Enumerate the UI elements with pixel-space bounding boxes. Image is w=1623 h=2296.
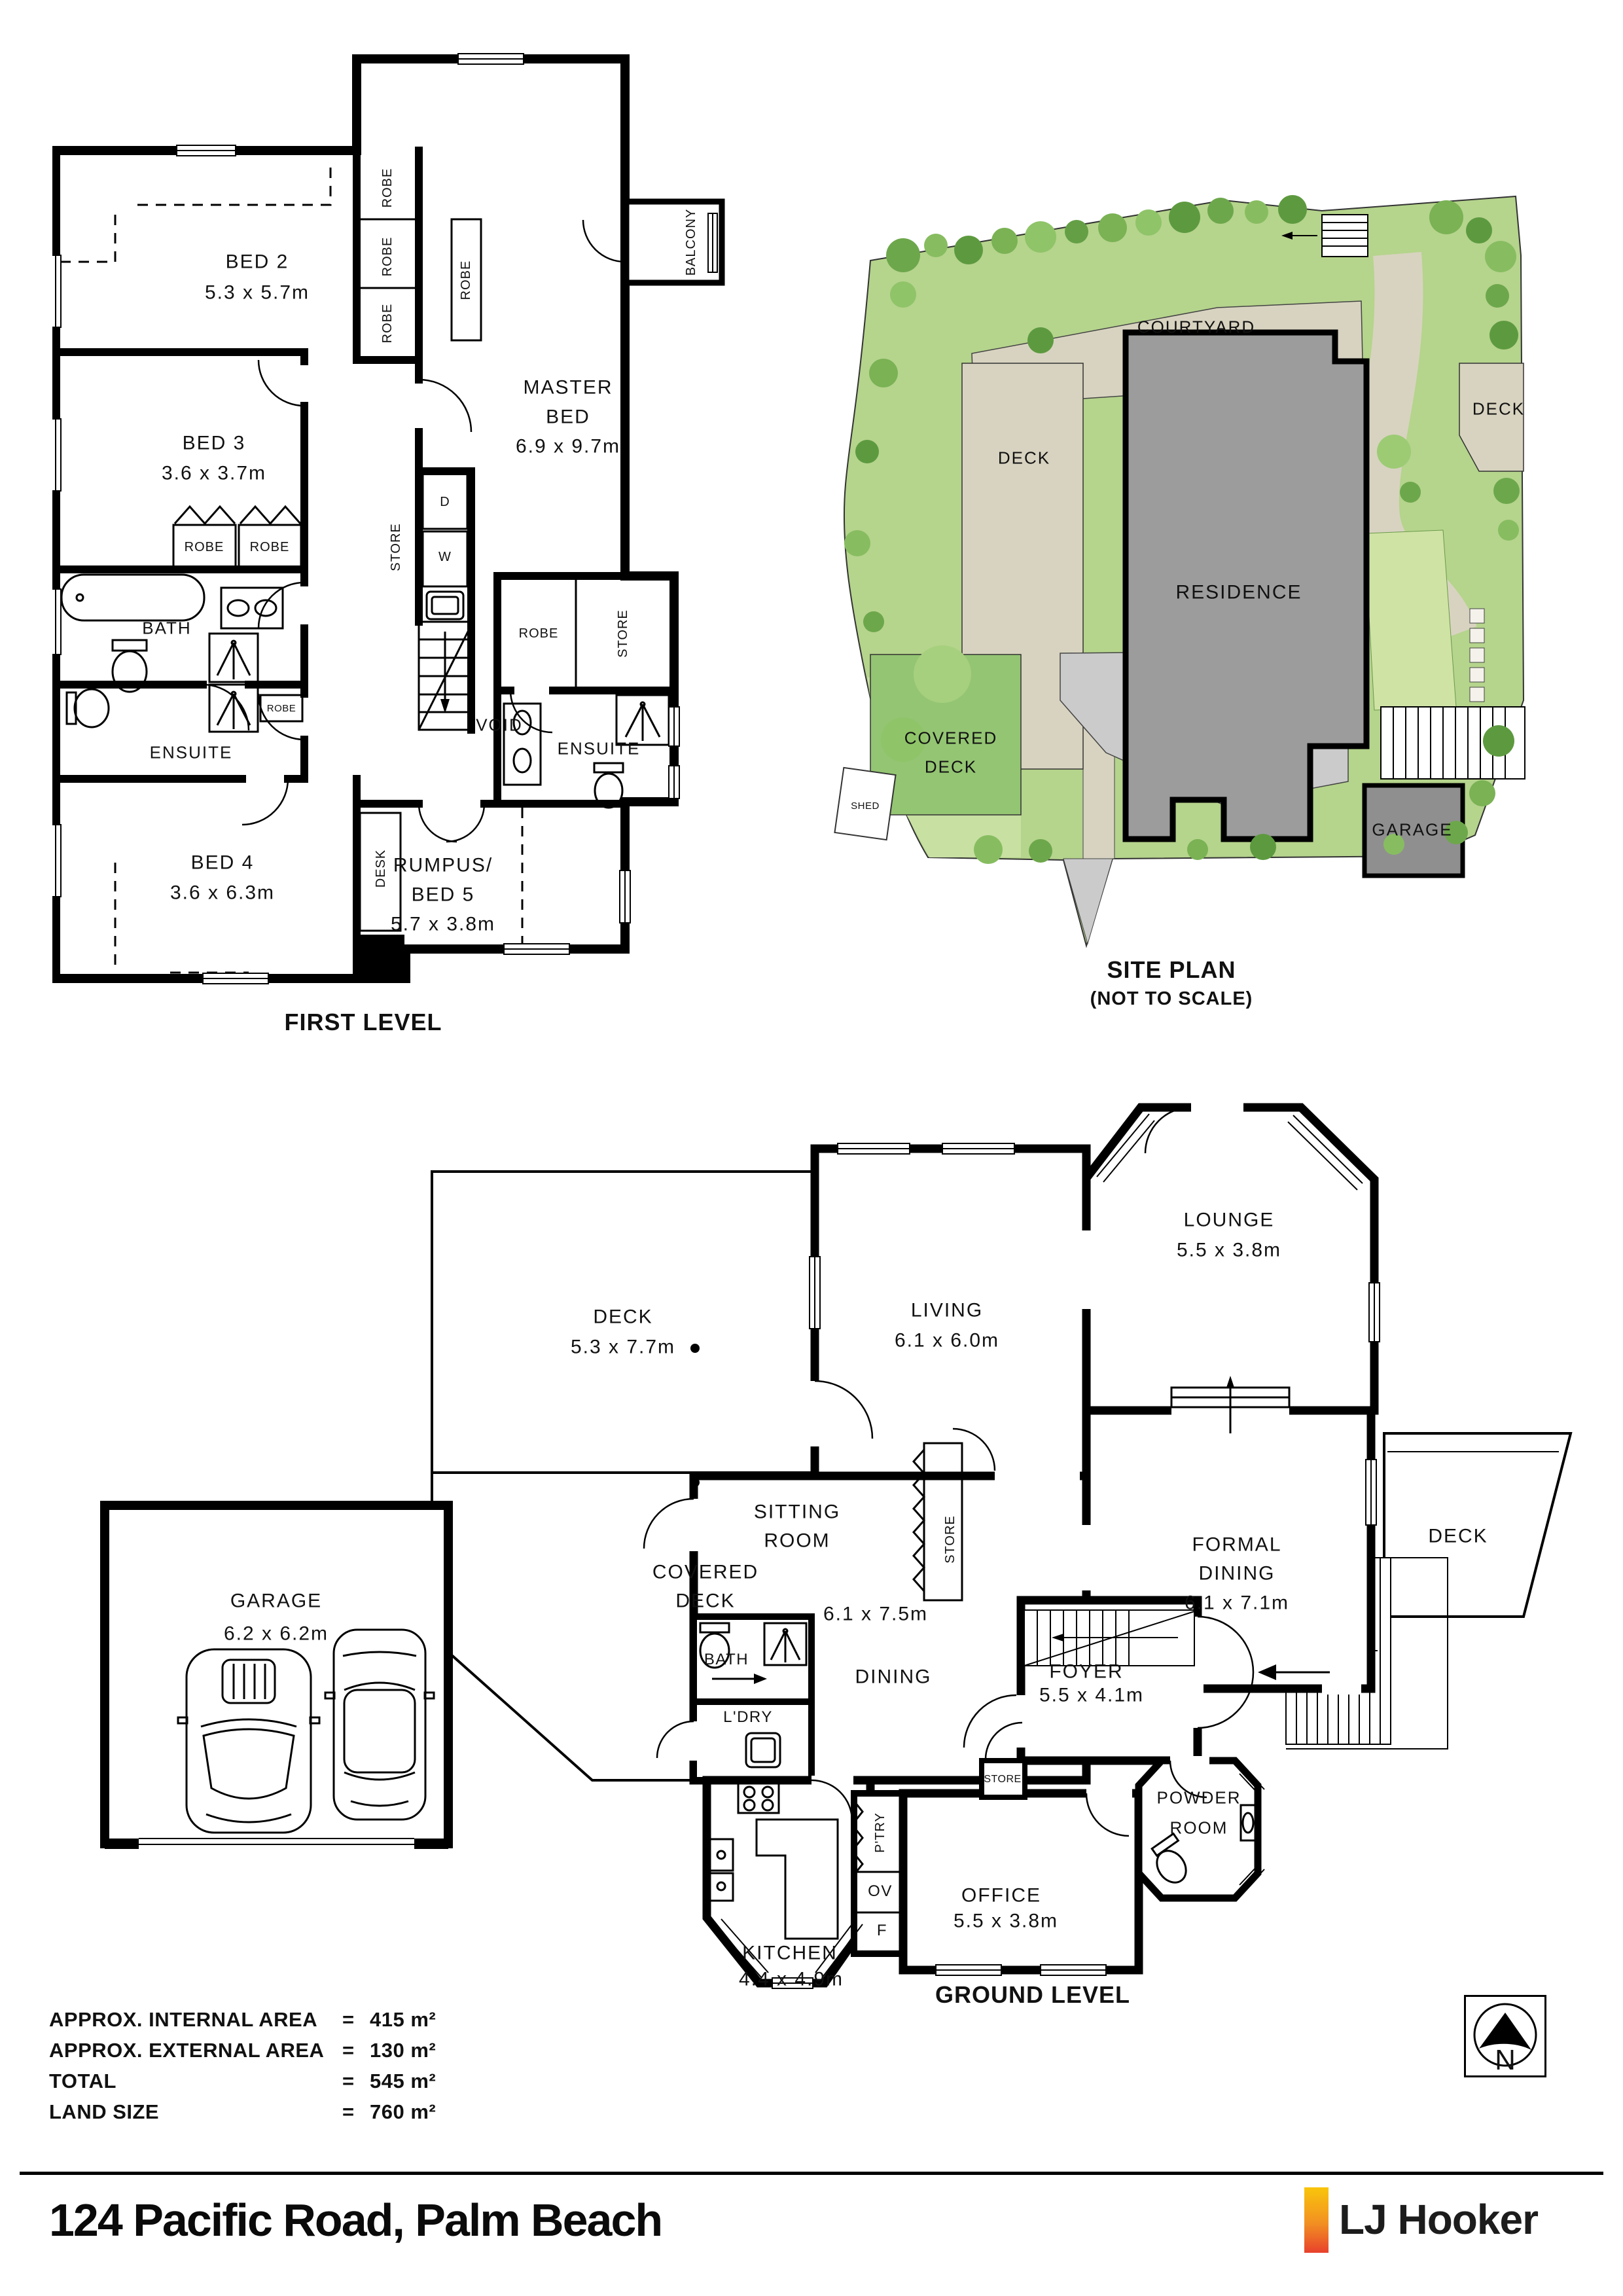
label-robe-ensuite: ROBE	[267, 704, 296, 715]
label-gl-deck-name: DECK	[593, 1306, 652, 1328]
label-bed2-dims: 5.3 x 5.7m	[205, 282, 310, 304]
label-gl-sitting-1: SITTING	[754, 1501, 840, 1523]
label-gl-powder-2: ROOM	[1170, 1819, 1228, 1838]
label-gl-bath: BATH	[704, 1651, 749, 1668]
label-rumpus-1: RUMPUS/	[393, 855, 493, 876]
label-gl-covered-2: DECK	[675, 1590, 735, 1612]
label-gl-dining-dims: 6.1 x 7.5m	[823, 1604, 928, 1625]
label-robe-col-2: ROBE	[380, 237, 395, 277]
caption-first-level: FIRST LEVEL	[284, 1009, 442, 1035]
label-gl-foyer-dims: 5.5 x 4.1m	[1039, 1685, 1144, 1706]
label-desk: DESK	[374, 850, 388, 888]
first-level-footprint	[56, 59, 674, 978]
label-gl-lounge-dims: 5.5 x 3.8m	[1177, 1240, 1281, 1261]
label-gl-store-cabinet: STORE	[943, 1515, 957, 1564]
summary-row: LAND SIZE = 760 m²	[49, 2096, 494, 2127]
label-store-hall: STORE	[389, 523, 403, 571]
label-gl-office-dims: 5.5 x 3.8m	[954, 1910, 1058, 1932]
label-gl-living-name: LIVING	[911, 1300, 983, 1321]
ljhooker-logo-bar	[1304, 2187, 1329, 2253]
label-rumpus-2: BED 5	[412, 884, 475, 906]
ground-level-plan-svg	[419, 1067, 1577, 2016]
label-master-dims: 6.9 x 9.7m	[516, 436, 620, 457]
footer-divider	[20, 2172, 1603, 2175]
label-bed3-name: BED 3	[183, 433, 246, 454]
caption-site-plan: SITE PLAN	[1107, 957, 1236, 983]
label-bed2-name: BED 2	[226, 251, 289, 273]
label-void: VOID	[476, 716, 523, 735]
label-gl-powder-1: POWDER	[1157, 1789, 1241, 1808]
summary-label: LAND SIZE	[49, 2100, 342, 2124]
label-site-deck-right: DECK	[1472, 400, 1525, 419]
summary-equals: =	[342, 2039, 370, 2062]
label-robe-col-1: ROBE	[380, 168, 395, 208]
label-garage-name: GARAGE	[230, 1590, 322, 1612]
label-courtyard: COURTYARD	[1137, 318, 1255, 337]
label-ensuite-left: ENSUITE	[150, 744, 233, 762]
summary-value: 130 m²	[370, 2039, 494, 2062]
label-robe-bed3-2: ROBE	[250, 540, 290, 554]
label-bed4-name: BED 4	[191, 852, 255, 874]
summary-value: 415 m²	[370, 2008, 494, 2032]
caption-site-plan-note: (NOT TO SCALE)	[1090, 989, 1253, 1010]
label-gl-deck-right: DECK	[1428, 1526, 1488, 1547]
label-master-1: MASTER	[523, 377, 613, 399]
label-bed4-dims: 3.6 x 6.3m	[170, 882, 275, 904]
gl-foyer-stairs	[1024, 1610, 1194, 1666]
label-store-band: STORE	[616, 609, 630, 658]
label-rumpus-dims: 5.7 x 3.8m	[391, 914, 495, 935]
site-plan-svg	[805, 177, 1538, 1021]
label-site-deck-left: DECK	[998, 449, 1050, 468]
summary-row: TOTAL = 545 m²	[49, 2066, 494, 2096]
label-gl-foyer-name: FOYER	[1049, 1661, 1123, 1683]
floorplan-page: BED 2 5.3 x 5.7m BED 3 3.6 x 3.7m MASTER…	[0, 0, 1623, 2296]
label-compass-north: N	[1495, 2045, 1516, 2076]
label-gl-office-name: OFFICE	[961, 1885, 1041, 1907]
label-gl-deck-dims: 5.3 x 7.7m	[571, 1336, 675, 1358]
summary-row: APPROX. EXTERNAL AREA = 130 m²	[49, 2035, 494, 2066]
label-bath: BATH	[142, 619, 191, 638]
summary-equals: =	[342, 2008, 370, 2032]
label-robe-col-3: ROBE	[380, 304, 395, 344]
label-gl-covered-1: COVERED	[652, 1562, 758, 1583]
property-address: 124 Pacific Road, Palm Beach	[49, 2194, 662, 2246]
label-master-2: BED	[546, 406, 590, 428]
caption-ground-level: GROUND LEVEL	[935, 1982, 1130, 2008]
summary-value: 545 m²	[370, 2070, 494, 2093]
label-gl-oven: OV	[868, 1883, 893, 1900]
summary-value: 760 m²	[370, 2100, 494, 2124]
summary-label: APPROX. EXTERNAL AREA	[49, 2039, 342, 2062]
label-bed3-dims: 3.6 x 3.7m	[162, 463, 266, 484]
summary-label: APPROX. INTERNAL AREA	[49, 2008, 342, 2032]
label-site-covered-1: COVERED	[904, 729, 998, 748]
summary-row: APPROX. INTERNAL AREA = 415 m²	[49, 2004, 494, 2035]
summary-equals: =	[342, 2100, 370, 2124]
label-gl-fridge: F	[877, 1922, 887, 1939]
label-gl-kitchen-dims: 4.4 x 4.9m	[739, 1969, 844, 1990]
area-summary: APPROX. INTERNAL AREA = 415 m² APPROX. E…	[49, 2004, 494, 2127]
label-gl-store-small: STORE	[984, 1774, 1021, 1785]
label-gl-lounge-name: LOUNGE	[1184, 1210, 1275, 1231]
label-robe-island: ROBE	[459, 260, 473, 300]
label-garage-dims: 6.2 x 6.2m	[224, 1623, 329, 1645]
label-gl-living-dims: 6.1 x 6.0m	[895, 1330, 999, 1352]
label-gl-formal-1: FORMAL	[1192, 1534, 1281, 1556]
label-dryer: D	[440, 495, 450, 509]
label-gl-sitting-2: ROOM	[764, 1530, 830, 1552]
label-site-garage: GARAGE	[1372, 821, 1452, 840]
label-gl-formal-2: DINING	[1199, 1563, 1275, 1585]
summary-label: TOTAL	[49, 2070, 342, 2093]
garage-plan-svg	[98, 1499, 455, 1849]
label-ensuite2: ENSUITE	[558, 740, 641, 759]
label-site-covered-2: DECK	[925, 758, 977, 777]
label-gl-laundry: L'DRY	[723, 1709, 773, 1726]
summary-equals: =	[342, 2070, 370, 2093]
label-gl-pantry: P'TRY	[873, 1812, 887, 1853]
label-gl-dining-name: DINING	[855, 1666, 932, 1688]
ljhooker-logo-text: LJ Hooker	[1339, 2195, 1538, 2244]
label-residence: RESIDENCE	[1175, 582, 1302, 603]
label-gl-kitchen-name: KITCHEN	[742, 1943, 838, 1964]
label-washer: W	[438, 550, 452, 564]
label-robe-bed3-1: ROBE	[185, 540, 224, 554]
label-gl-formal-dims: 6.1 x 7.1m	[1185, 1592, 1289, 1614]
label-balcony: BALCONY	[684, 209, 698, 276]
label-robe-band: ROBE	[519, 626, 559, 641]
label-shed: SHED	[851, 801, 880, 812]
